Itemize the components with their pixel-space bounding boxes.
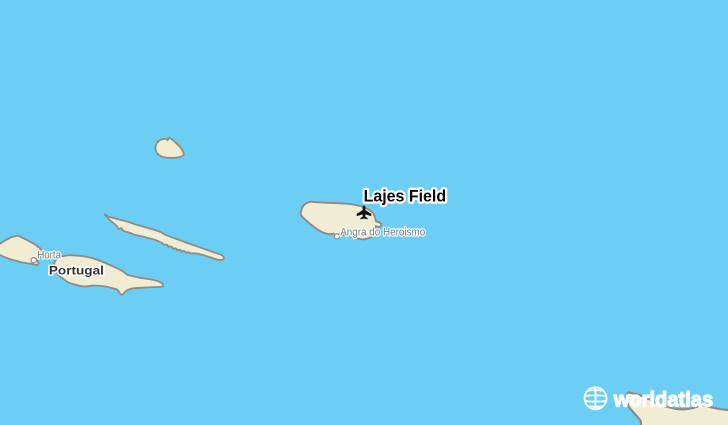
- svg-text:Horta: Horta: [37, 250, 62, 262]
- svg-text:Lajes Field: Lajes Field: [364, 187, 447, 206]
- svg-text:Portugal: Portugal: [49, 264, 104, 278]
- svg-text:Angra do Heroismo: Angra do Heroismo: [340, 227, 425, 239]
- svg-text:worldatlas: worldatlas: [613, 388, 713, 412]
